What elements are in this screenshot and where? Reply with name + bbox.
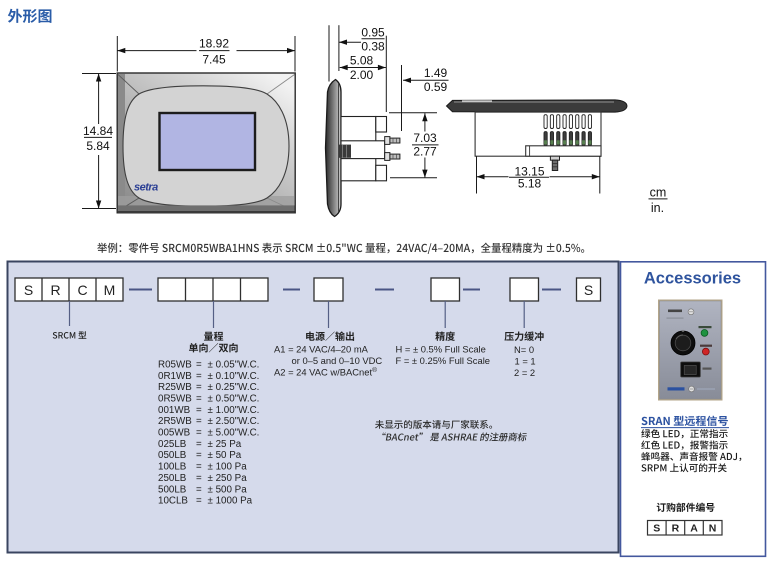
svg-text:2 = 2: 2 = 2: [514, 367, 535, 378]
svg-text:0.38: 0.38: [361, 39, 385, 53]
svg-text:5.08: 5.08: [350, 53, 374, 67]
svg-text:C: C: [77, 282, 87, 298]
svg-text:± 250 Pa: ± 250 Pa: [208, 473, 248, 484]
svg-text:S: S: [24, 282, 33, 298]
svg-text:setra: setra: [134, 182, 158, 194]
svg-text:100LB: 100LB: [158, 462, 187, 473]
svg-text:=: =: [196, 382, 202, 393]
svg-text:or 0–5 and 0–10 VDC: or 0–5 and 0–10 VDC: [292, 355, 383, 366]
svg-text:1.49: 1.49: [424, 66, 448, 80]
svg-text:N: N: [709, 522, 717, 534]
svg-text:2.00: 2.00: [350, 68, 374, 82]
svg-text:M: M: [104, 282, 116, 298]
svg-text:N= 0: N= 0: [514, 344, 534, 355]
svg-text:± 1000 Pa: ± 1000 Pa: [208, 496, 253, 507]
svg-text:005WB: 005WB: [158, 428, 191, 439]
svg-text:=: =: [196, 484, 202, 495]
svg-text:± 0.50"W.C.: ± 0.50"W.C.: [208, 394, 260, 405]
svg-text:S: S: [653, 522, 660, 534]
svg-text:A2 = 24 VAC w/BACnet®: A2 = 24 VAC w/BACnet®: [274, 366, 377, 378]
svg-text:=: =: [196, 496, 202, 507]
svg-text:± 50 Pa: ± 50 Pa: [208, 450, 242, 461]
svg-text:14.84: 14.84: [83, 124, 113, 138]
svg-text:± 1.00"W.C.: ± 1.00"W.C.: [208, 405, 260, 416]
svg-text:001WB: 001WB: [158, 405, 191, 416]
svg-text:± 5.00"W.C.: ± 5.00"W.C.: [208, 428, 260, 439]
svg-text:in.: in.: [651, 201, 664, 215]
svg-text:R25WB: R25WB: [158, 382, 192, 393]
svg-text:5.84: 5.84: [86, 139, 110, 153]
svg-text:± 100 Pa: ± 100 Pa: [208, 462, 248, 473]
svg-text:H = ± 0.5% Full Scale: H = ± 0.5% Full Scale: [396, 344, 486, 355]
svg-text:2R5WB: 2R5WB: [158, 416, 192, 427]
svg-text:2.77: 2.77: [413, 145, 437, 159]
svg-text:18.92: 18.92: [199, 37, 229, 51]
svg-text:=: =: [196, 462, 202, 473]
svg-text:500LB: 500LB: [158, 484, 187, 495]
svg-text:R05WB: R05WB: [158, 359, 192, 370]
svg-text:025LB: 025LB: [158, 439, 187, 450]
svg-text:7.03: 7.03: [413, 131, 437, 145]
svg-text:F = ± 0.25% Full Scale: F = ± 0.25% Full Scale: [396, 355, 491, 366]
svg-text:=: =: [196, 371, 202, 382]
svg-text:=: =: [196, 450, 202, 461]
svg-text:± 0.05"W.C.: ± 0.05"W.C.: [208, 359, 260, 370]
svg-text:A1 = 24 VAC/4–20 mA: A1 = 24 VAC/4–20 mA: [274, 344, 369, 355]
svg-text:0.59: 0.59: [424, 80, 448, 94]
svg-text:cm: cm: [650, 186, 667, 200]
svg-text:0R5WB: 0R5WB: [158, 394, 192, 405]
svg-text:=: =: [196, 394, 202, 405]
svg-text:250LB: 250LB: [158, 473, 187, 484]
svg-text:± 25 Pa: ± 25 Pa: [208, 439, 242, 450]
svg-text:7.45: 7.45: [202, 52, 226, 66]
svg-text:± 0.10"W.C.: ± 0.10"W.C.: [208, 371, 260, 382]
svg-text:0R1WB: 0R1WB: [158, 371, 192, 382]
svg-text:0.95: 0.95: [361, 25, 385, 39]
svg-text:=: =: [196, 473, 202, 484]
svg-text:± 0.25"W.C.: ± 0.25"W.C.: [208, 382, 260, 393]
svg-text:S: S: [584, 282, 593, 298]
svg-text:=: =: [196, 416, 202, 427]
svg-text:=: =: [196, 439, 202, 450]
svg-text:R: R: [50, 282, 60, 298]
svg-text:± 2.50"W.C.: ± 2.50"W.C.: [208, 416, 260, 427]
svg-text:R: R: [672, 522, 680, 534]
svg-text:=: =: [196, 359, 202, 370]
svg-text:1 = 1: 1 = 1: [515, 355, 536, 366]
svg-text:10CLB: 10CLB: [158, 496, 188, 507]
svg-text:A: A: [690, 522, 698, 534]
svg-text:5.18: 5.18: [518, 177, 542, 191]
svg-text:050LB: 050LB: [158, 450, 187, 461]
svg-text:=: =: [196, 405, 202, 416]
svg-text:=: =: [196, 428, 202, 439]
svg-text:± 500 Pa: ± 500 Pa: [208, 484, 248, 495]
svg-text:Accessories: Accessories: [644, 269, 741, 287]
